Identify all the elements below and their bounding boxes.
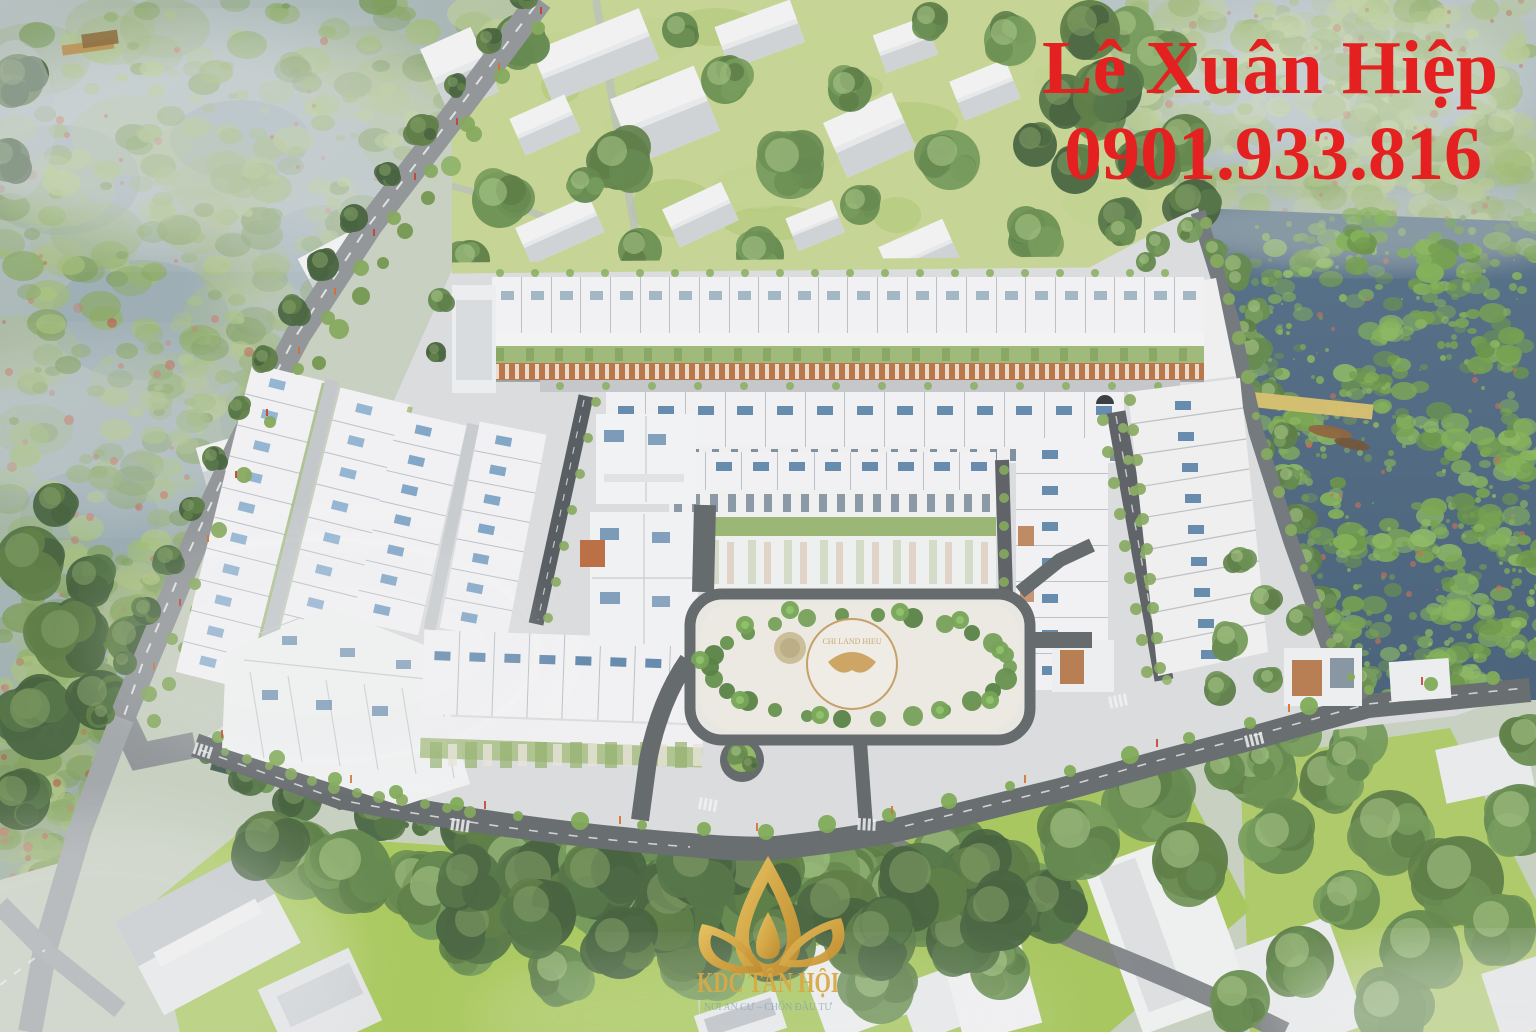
svg-text:0901.933.816: 0901.933.816 [1064,112,1482,196]
svg-text:NƠI AN CƯ – CHỐN ĐẦU TƯ: NƠI AN CƯ – CHỐN ĐẦU TƯ [704,1000,832,1013]
svg-text:KDC TÂN HỘI: KDC TÂN HỘI [697,968,839,999]
svg-text:Lê Xuân Hiệp: Lê Xuân Hiệp [1042,26,1498,110]
